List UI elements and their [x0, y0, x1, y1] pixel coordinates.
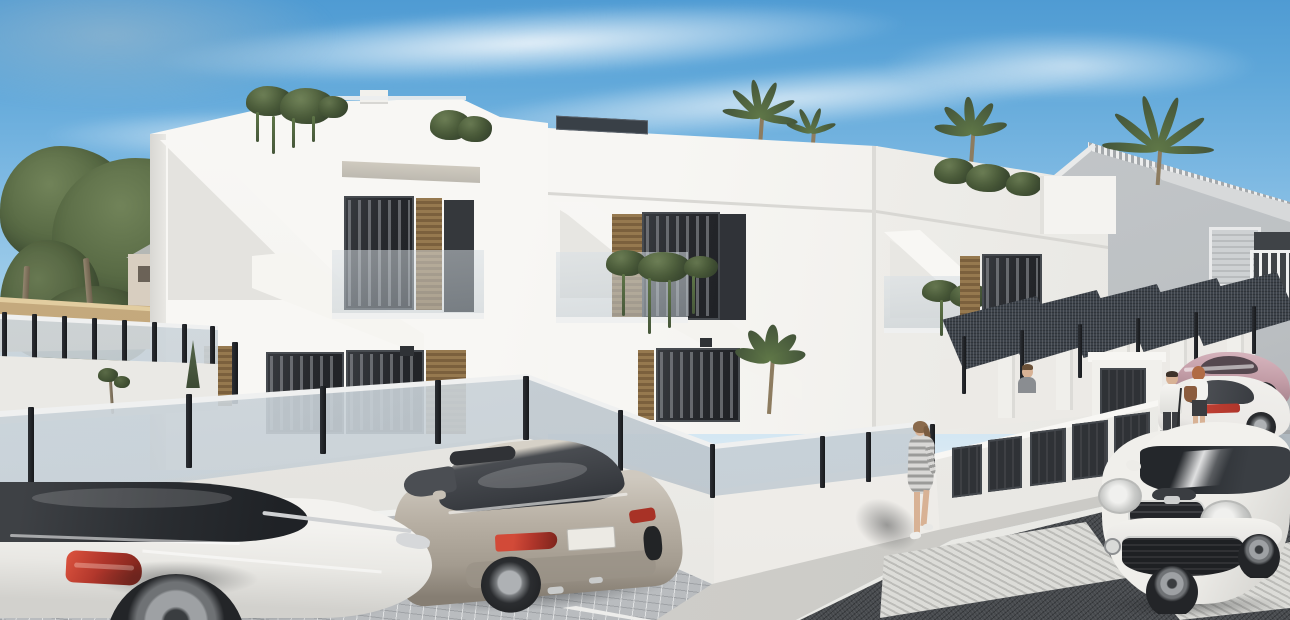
fence-post — [2, 312, 7, 358]
person-hair — [1166, 371, 1178, 377]
cloud — [880, 30, 1260, 100]
carport-pier — [998, 352, 1015, 418]
ground-wood-slat — [638, 350, 654, 420]
car-white-mini — [1098, 386, 1290, 620]
fence-post — [62, 316, 67, 362]
person-shoulders — [1018, 377, 1036, 393]
balcony-rail — [332, 313, 484, 319]
fence-post — [320, 386, 326, 454]
car-wheel-window — [1238, 534, 1280, 578]
fence-post — [710, 444, 715, 498]
person-shoe — [923, 523, 934, 530]
person-woman-striped-dress — [898, 420, 942, 560]
car-badge — [1164, 496, 1180, 504]
roof-ivy-right — [458, 116, 492, 142]
palm-frond — [1158, 146, 1214, 155]
architectural-render — [0, 0, 1290, 620]
fence-post — [32, 314, 37, 360]
plant-strand — [668, 280, 671, 328]
car-wheel — [106, 574, 246, 620]
palm-trunk — [767, 356, 775, 414]
fence-post — [523, 376, 529, 440]
ground-window — [656, 348, 740, 422]
car-white-coupe — [0, 476, 442, 620]
fence-post — [866, 432, 871, 482]
person-hair — [1022, 364, 1033, 370]
person-shoe — [909, 531, 921, 540]
license-plate — [567, 526, 616, 551]
roof-shrub — [966, 164, 1010, 192]
roof-parapet-block — [1040, 176, 1116, 234]
ivy-strand — [256, 112, 259, 142]
fence-post — [122, 320, 127, 365]
car-wheel-window — [100, 572, 252, 620]
plant-strand — [940, 300, 943, 336]
roof-shrub — [1006, 172, 1042, 196]
roof-ivy — [318, 96, 348, 118]
car-mirror — [1126, 460, 1141, 471]
wall-lamp — [400, 346, 414, 356]
car-wheel-window — [1144, 566, 1198, 614]
plant-strand — [692, 276, 695, 314]
balcony-glass — [332, 250, 484, 316]
car-wheel — [1238, 534, 1280, 578]
ivy-strand — [272, 116, 275, 154]
carport-post — [1252, 306, 1256, 354]
garden-palm — [738, 318, 802, 418]
car-windshield — [1140, 446, 1290, 494]
fence-post — [92, 318, 97, 363]
car-headlight — [1098, 478, 1142, 514]
fence-post — [186, 394, 192, 468]
ivy-strand — [312, 116, 315, 142]
ivy-strand — [292, 118, 295, 148]
fence-post — [182, 324, 187, 368]
house-window — [138, 266, 150, 282]
carport-post — [962, 336, 966, 394]
balcony-door-dark — [720, 214, 746, 320]
garage-door — [988, 436, 1022, 492]
glass-reflection — [32, 488, 232, 508]
carport-pier — [1056, 346, 1073, 410]
car-taillight — [495, 532, 558, 552]
carport-post — [1078, 324, 1082, 378]
garage-door — [952, 444, 982, 498]
fence-post — [820, 436, 825, 488]
fence-post — [210, 326, 215, 369]
car-exhaust — [547, 586, 564, 594]
curtain — [660, 352, 736, 418]
glass-reflection — [1151, 446, 1265, 490]
fence-post — [435, 380, 441, 444]
person-leg — [914, 492, 920, 534]
plant-strand — [648, 278, 651, 334]
wall-lamp — [700, 338, 712, 347]
hanging-plant — [684, 256, 718, 278]
fence-post — [152, 322, 157, 366]
fog-lamp — [1104, 538, 1121, 555]
hanging-plant — [638, 252, 690, 282]
rooftop-palm — [1108, 122, 1208, 188]
person-hair — [1192, 366, 1205, 380]
young-tree-leaves — [114, 376, 130, 388]
plant-strand — [622, 274, 625, 316]
garage-door — [1030, 428, 1066, 486]
car-wheel — [1146, 566, 1198, 614]
